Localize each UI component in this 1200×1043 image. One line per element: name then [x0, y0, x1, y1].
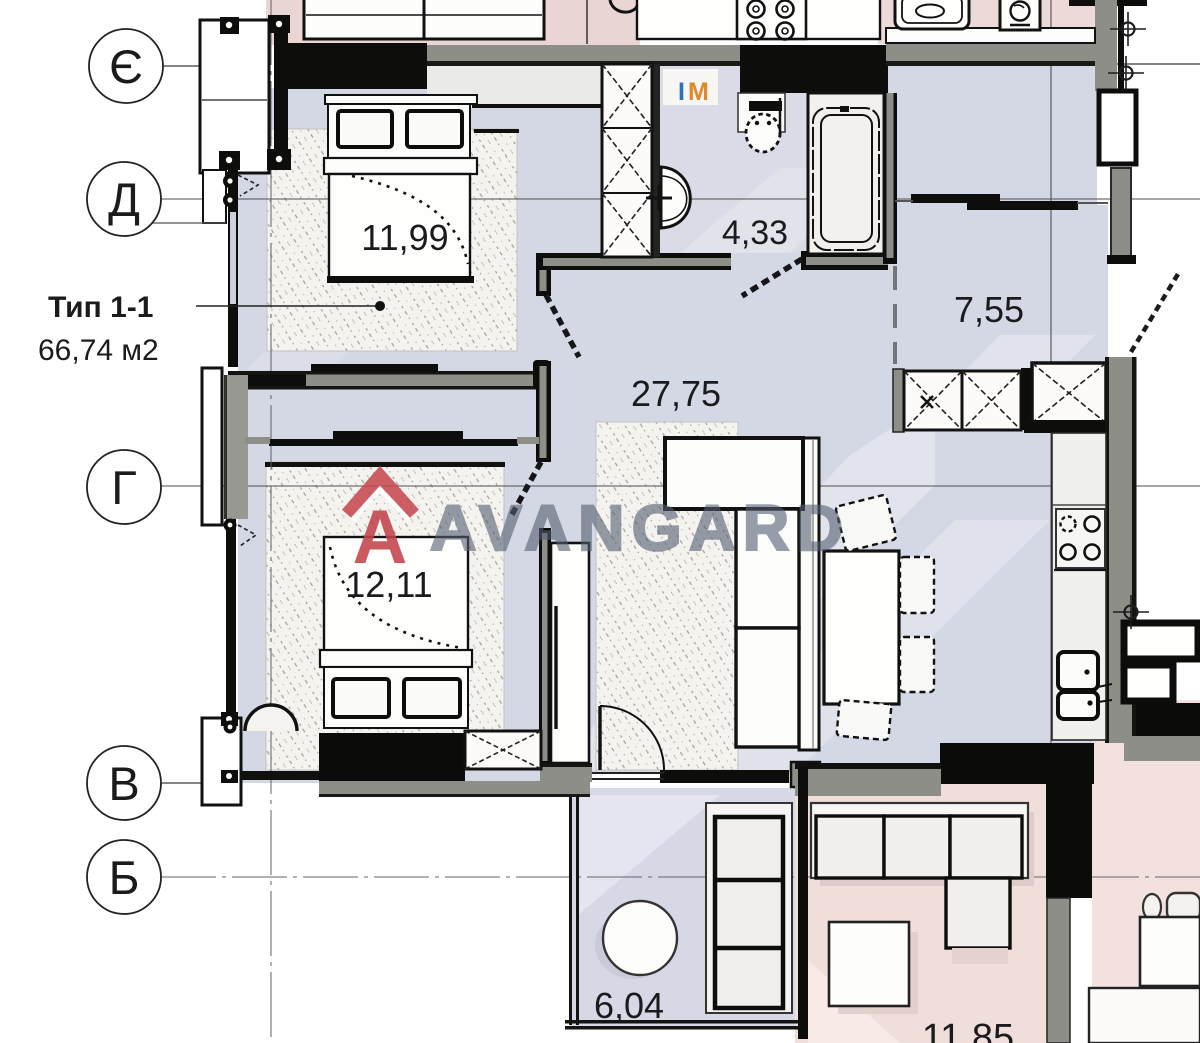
svg-text:Г: Г: [111, 461, 136, 514]
svg-text:Є: Є: [109, 40, 143, 93]
svg-text:66,74 м2: 66,74 м2: [38, 334, 159, 367]
svg-text:6,04: 6,04: [594, 985, 664, 1026]
svg-text:M: M: [688, 78, 709, 106]
svg-text:A: A: [353, 495, 408, 580]
svg-text:Тип 1-1: Тип 1-1: [48, 291, 153, 324]
svg-text:Д: Д: [108, 173, 140, 226]
svg-text:4,33: 4,33: [722, 214, 788, 252]
svg-text:AVANGARD: AVANGARD: [430, 492, 850, 564]
svg-text:11,85: 11,85: [922, 1017, 1014, 1043]
svg-text:27,75: 27,75: [631, 373, 721, 414]
svg-text:В: В: [108, 757, 139, 810]
svg-text:11,99: 11,99: [361, 217, 448, 258]
svg-text:7,55: 7,55: [954, 289, 1024, 330]
svg-text:Б: Б: [109, 851, 140, 904]
svg-text:I: I: [678, 78, 685, 106]
